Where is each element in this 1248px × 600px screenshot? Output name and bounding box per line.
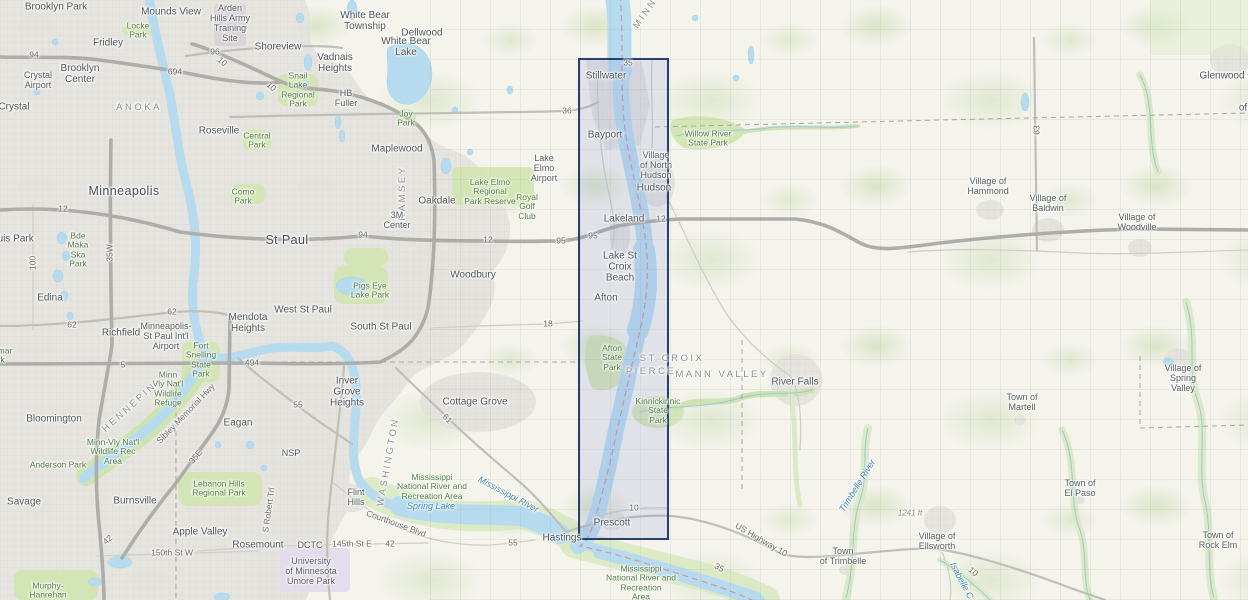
map-label: MINN xyxy=(632,0,660,31)
map-label: Kinnickinnic State Park xyxy=(636,397,681,425)
map-label: Flint Hills xyxy=(347,488,364,508)
map-label: Lakeland xyxy=(604,214,645,225)
map-label: Apple Valley xyxy=(173,527,228,538)
map-labels-layer: Brooklyn ParkMounds ViewArden Hills Army… xyxy=(0,0,1248,600)
map-label: Murphy- Hanrehan xyxy=(29,582,66,600)
map-label: St Louis Park xyxy=(0,234,34,245)
map-label: Prescott xyxy=(594,518,631,529)
map-label: St Paul xyxy=(265,234,308,248)
map-label: Inver Grove Heights xyxy=(330,376,364,409)
map-label: ST CROIX xyxy=(640,354,705,364)
map-label: Minneapolis xyxy=(88,185,159,199)
map-label: White Bear Lake xyxy=(381,36,430,58)
map-label: 10 xyxy=(966,565,979,578)
map-label: 12 xyxy=(58,204,67,213)
map-label: Richfield xyxy=(102,328,140,339)
map-label: Hastings xyxy=(543,533,582,544)
map-label: Village of North Hudson xyxy=(640,151,672,181)
map-label: HB Fuller xyxy=(335,89,358,109)
map-label: Town of Trimbelle xyxy=(820,547,867,567)
map-label: 35 xyxy=(713,562,726,575)
map-label: Minneapolis- St Paul Int'l Airport xyxy=(140,322,191,352)
map-label: Village of Woodville xyxy=(1118,213,1157,233)
map-label: Central Park xyxy=(243,132,270,151)
map-label: 62 xyxy=(167,307,176,316)
map-label: Afton State Park xyxy=(602,344,622,372)
map-label: 42 xyxy=(385,539,394,548)
map-label: Village of Ellsworth xyxy=(919,532,956,552)
map-label: Town of Rock Elm xyxy=(1199,531,1238,551)
map-label: 145th St E xyxy=(332,539,372,548)
map-label: Savage xyxy=(7,497,41,508)
map-label: 3M Center xyxy=(383,211,410,231)
map-label: Lake Elmo Regional Park Reserve xyxy=(464,178,516,206)
map-label: Bloomington xyxy=(26,414,82,425)
map-label: 5 xyxy=(121,360,126,369)
map-label: South St Paul xyxy=(350,322,411,333)
map-label: Brooklyn Center xyxy=(61,63,100,85)
map-label: S Robert Trl xyxy=(261,487,277,533)
map-label: 95 xyxy=(588,231,597,240)
map-label: 1241 ft xyxy=(898,510,922,519)
map-label: White Bear Township xyxy=(340,10,389,32)
map-label: Willow River State Park xyxy=(685,130,732,149)
map-label: Oakdale xyxy=(418,196,455,207)
map-label: 35E xyxy=(188,448,205,466)
map-label: 35W xyxy=(105,244,114,261)
map-label: 94 xyxy=(358,230,367,239)
map-label: Fridley xyxy=(93,38,123,49)
map-label: Trimbelle River xyxy=(838,458,878,514)
map-label: Locke Park xyxy=(127,22,150,41)
map-label: Mendota Heights xyxy=(229,312,268,334)
map-label: Spring Lake xyxy=(407,502,455,512)
map-label: 12 xyxy=(656,214,665,223)
map-label: River Falls xyxy=(771,377,818,388)
map-label: 55 xyxy=(293,400,302,409)
map-label: Lake St Croix Beach xyxy=(603,251,637,284)
map-label: Edina xyxy=(37,293,63,304)
map-label: Crystal xyxy=(0,102,30,113)
map-label: 12 xyxy=(483,235,492,244)
map-label: Royal Golf Club xyxy=(516,193,538,221)
map-label: Maplewood xyxy=(371,144,422,155)
map-label: of xyxy=(1239,103,1247,114)
map-label: Rosemount xyxy=(232,540,283,551)
map-label: 18 xyxy=(543,319,552,328)
map-label: Lebanon Hills Regional Park xyxy=(192,480,245,499)
map-label: Pigs Eye Lake Park xyxy=(351,282,389,301)
map-label: 95 xyxy=(556,236,565,245)
map-label: 10 xyxy=(215,55,228,68)
map-label: Burnsville xyxy=(113,496,156,507)
map-label: Minn-Vly Nat'l Wildlife Rec Area xyxy=(87,438,139,466)
map-label: 35 xyxy=(623,58,632,67)
map-label: 10 xyxy=(264,80,277,93)
map-label: 55 xyxy=(508,538,517,547)
map-label: Mississippi National River and Recreatio… xyxy=(606,564,676,600)
map-label: HENNEPIN xyxy=(101,381,159,435)
map-label: 100 xyxy=(28,256,37,270)
map-label: Como Park xyxy=(232,188,255,207)
map-label: Mississippi River xyxy=(476,475,540,515)
map-label: Vadnais Heights xyxy=(317,52,352,74)
map-label: Woodbury xyxy=(450,270,495,281)
map-label: Mounds View xyxy=(141,7,201,18)
map-label: 62 xyxy=(67,320,76,329)
map-label: 494 xyxy=(245,358,259,367)
map-label: Village of Spring Valley xyxy=(1165,364,1202,394)
map-label: Hudson xyxy=(637,183,671,194)
map-label: Eagan xyxy=(224,418,253,429)
map-label: Afton xyxy=(594,293,617,304)
map-label: 36 xyxy=(562,106,571,115)
map-label: Anderson Park xyxy=(30,460,86,469)
map-label: Shoreview xyxy=(255,42,302,53)
map-label: MANN VALLEY xyxy=(675,370,768,380)
map-label: 42 xyxy=(101,533,114,546)
map-label: Crystal Airport xyxy=(24,71,52,91)
map-label: 96 xyxy=(210,47,219,56)
map-label: Stillwater xyxy=(586,71,627,82)
map-label: Arden Hills Army Training Site xyxy=(210,4,250,44)
map-label: Braemar Park xyxy=(0,347,12,366)
map-label: Fort Snelling State Park xyxy=(186,341,216,378)
map-canvas[interactable]: Brooklyn ParkMounds ViewArden Hills Army… xyxy=(0,0,1248,600)
map-label: West St Paul xyxy=(274,305,332,316)
map-label: Bde Maka Ska Park xyxy=(68,231,89,268)
map-label: ANOKA xyxy=(116,103,162,113)
map-label: DCTC xyxy=(298,541,323,551)
map-label: Courthouse Blvd xyxy=(365,509,427,539)
map-label: University of Minnesota Umore Park xyxy=(285,557,337,587)
map-label: 63 xyxy=(1032,125,1041,134)
map-label: Glenwood City xyxy=(1199,71,1248,82)
map-label: US Highway 10 xyxy=(733,521,788,558)
map-label: PIERCE xyxy=(626,367,676,377)
map-label: Town of El Paso xyxy=(1064,479,1095,499)
map-label: Village of Baldwin xyxy=(1030,194,1067,214)
map-label: Roseville xyxy=(199,126,240,137)
map-label: Brooklyn Park xyxy=(25,2,87,13)
map-label: 94 xyxy=(29,50,38,59)
map-label: 694 xyxy=(168,67,182,76)
map-label: Bayport xyxy=(588,130,622,141)
map-label: 150th St W xyxy=(151,548,193,557)
map-label: Village of Hammond xyxy=(967,177,1009,197)
map-label: Mississippi National River and Recreatio… xyxy=(397,473,467,501)
map-label: 61 xyxy=(440,412,453,425)
map-label: Town of Martell xyxy=(1006,393,1037,413)
map-label: Cottage Grove xyxy=(442,397,507,408)
map-label: Lake Elmo Airport xyxy=(531,154,558,184)
map-label: Joy Park xyxy=(397,110,414,129)
map-label: Snail Lake Regional Park xyxy=(281,71,315,108)
map-label: 10 xyxy=(629,503,638,512)
map-label: NSP xyxy=(282,449,301,459)
